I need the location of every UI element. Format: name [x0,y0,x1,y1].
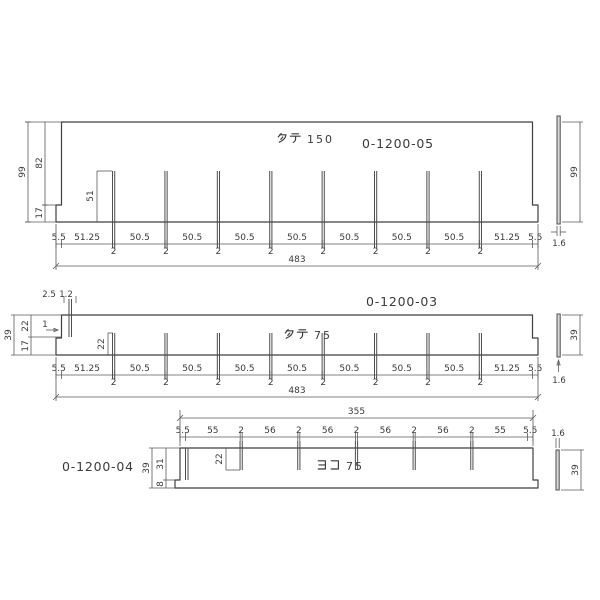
dimension-chain: 5.551.25250.5250.5250.5250.5250.5250.525… [52,333,543,401]
dimension-chain: 5.551.25250.5250.5250.5250.5250.5250.525… [52,171,543,270]
dim-label: 2 [478,378,484,388]
fin-height-dimension: 22 [215,448,240,470]
title-label: 150 [278,133,334,146]
dim-label: 50.5 [392,364,412,374]
dim-label: 5.5 [52,364,66,374]
dim-label: 50.5 [392,233,412,243]
dim-overall-height: 99 [18,166,28,178]
dim-label: 51.25 [494,233,520,243]
dim-upper-height: 82 [35,157,45,168]
dim-label: 2 [478,247,484,257]
dim-label: 2 [111,378,117,388]
katakana-yo-glyph [318,461,325,469]
dim-label: 2 [425,378,431,388]
dim-total-label: 483 [288,255,305,265]
dim-overall-height: 39 [4,329,14,341]
dim-fin-height: 51 [86,190,96,201]
side-view: 1.6 39 [551,429,584,490]
dim-total-label: 483 [288,386,305,396]
dim-label: 2 [268,378,274,388]
dim-side-height: 99 [570,166,580,178]
dim-label: 5.5 [528,364,542,374]
dim-label: 2 [320,247,326,257]
dim-label: 2 [216,247,222,257]
dim-label: 51.25 [74,233,100,243]
dim-label: 2 [373,378,379,388]
dim-label: 51.25 [494,364,520,374]
katakana-te-glyph [290,134,300,143]
part-number: 0-1200-05 [362,136,434,151]
drawing-canvas: 99 82 17 51 150 0-1200-05 99 [0,0,600,600]
drawing-tate-75: 2.5 1.2 39 22 17 1 22 75 [4,290,583,401]
title-label: 75 [285,329,332,342]
dim-label: 50.5 [444,364,464,374]
dim-label: 2 [425,247,431,257]
dim-label: 56 [322,426,334,436]
dim-label: 5.5 [528,233,542,243]
part-number: 0-1200-03 [366,294,438,309]
dim-label: 5.5 [176,426,190,436]
title-number: 150 [307,133,334,146]
drawing-sheet: 99 82 17 51 150 0-1200-05 99 [0,0,600,600]
dim-side-thickness: 1.6 [552,239,566,249]
dim-side-thickness: 1.6 [551,429,565,439]
side-profile [557,314,560,357]
dim-overall-height: 39 [142,462,152,474]
left-dimensions: 99 82 17 [18,122,62,222]
dim-label: 50.5 [444,233,464,243]
fin-height-dimension: 51 [86,171,112,222]
dim-top-small-1: 2.5 [42,290,56,300]
dim-step: 1 [42,320,47,330]
dim-fin-height: 22 [215,453,225,464]
title-number: 75 [314,329,332,342]
dim-label: 56 [380,426,392,436]
fin-height-dimension: 22 [97,333,113,355]
profile-outline [56,122,538,222]
dim-label: 2 [411,426,417,436]
dim-label: 55 [494,426,505,436]
dim-label: 2 [296,426,302,436]
dim-label: 2 [163,378,169,388]
dim-label: 50.5 [182,233,202,243]
dim-lower-height: 17 [35,207,45,218]
left-dimensions: 39 31 8 [142,448,180,488]
dim-label: 50.5 [287,233,307,243]
dim-label: 5.5 [52,233,66,243]
dim-label: 2 [268,247,274,257]
katakana-te-glyph [297,330,307,339]
dim-side-height: 39 [571,464,581,476]
drawing-yoko-75: 39 31 8 22 75 0-1200-04 1.6 39 5. [62,407,584,490]
dim-label: 50.5 [339,364,359,374]
dim-total-label: 355 [348,407,365,417]
dim-label: 55 [207,426,218,436]
dim-lower-height: 8 [156,481,166,487]
dim-label: 2 [373,247,379,257]
dim-label: 2 [354,426,360,436]
dim-label: 50.5 [182,364,202,374]
side-profile [556,450,559,490]
dim-label: 2 [163,247,169,257]
side-view: 39 1.6 [552,314,583,386]
dim-label: 50.5 [235,364,255,374]
dim-label: 2 [320,378,326,388]
dim-label: 2 [216,378,222,388]
dim-upper-height: 22 [21,320,31,331]
dim-side-thickness: 1.6 [552,376,566,386]
dim-lower-height: 17 [21,340,31,351]
dim-fin-height: 22 [97,338,107,349]
dim-upper-height: 31 [156,458,166,469]
dim-side-height: 39 [570,329,580,341]
dim-label: 50.5 [130,233,150,243]
dim-label: 50.5 [339,233,359,243]
katakana-ta-glyph [285,330,293,339]
dim-label: 50.5 [287,364,307,374]
dim-label: 50.5 [130,364,150,374]
dim-label: 51.25 [74,364,100,374]
side-view: 99 1.6 [551,116,583,249]
top-small-dimensions: 2.5 1.2 [42,290,76,303]
dim-top-small-2: 1.2 [59,290,73,300]
left-dimensions: 39 22 17 1 [4,315,62,355]
side-profile [557,116,560,224]
profile-outline [56,315,538,355]
dim-label: 2 [111,247,117,257]
katakana-ko-glyph [331,461,338,469]
part-number: 0-1200-04 [62,459,134,474]
dim-label: 56 [264,426,276,436]
dim-label: 56 [437,426,449,436]
dim-label: 2 [469,426,475,436]
dim-label: 2 [238,426,244,436]
dim-label: 5.5 [523,426,537,436]
dim-label: 50.5 [235,233,255,243]
drawing-tate-150: 99 82 17 51 150 0-1200-05 99 [18,116,583,270]
katakana-ta-glyph [278,134,286,143]
